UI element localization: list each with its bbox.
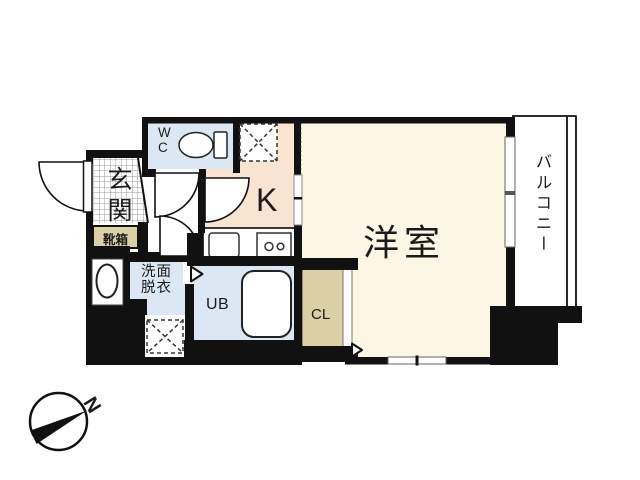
entrance-door-swing-icon [39,162,88,211]
closet-label: CL [311,306,330,323]
window-icon [388,357,416,364]
washbasin-icon [97,265,118,298]
kitchen-label: K [256,182,277,219]
stove-burner-icon [277,243,284,250]
unit-bath-label: UB [206,296,229,314]
fridge-space-icon [240,124,277,161]
stove-icon [257,233,291,259]
closet-door-strip [343,268,352,350]
wc-label: WC [158,125,174,155]
washroom-label: 洗面脱衣 [141,264,174,296]
wall-stub [187,233,203,266]
wc-door-swing-icon [155,173,199,217]
toilet-icon [179,132,227,158]
stove-burner-icon [265,243,273,251]
window-icon [418,357,446,364]
window-sash-tick [505,191,516,195]
compass-icon [30,393,87,450]
balcony-label: バルコニー [530,153,554,256]
western-room-label: 洋室 [363,214,445,266]
washer-space-icon [147,320,183,353]
bathtub-icon [242,271,291,337]
sliding-door-icon [294,175,302,225]
window-sash-tick [416,356,419,366]
floorplan-canvas: WC 玄関 靴箱 K 洗面脱衣 UB CL 洋室 バルコニー N [0,0,640,480]
entrance-label: 玄関 [100,166,136,228]
kitchen-sink-icon [209,233,239,257]
entrance-door-leaf [84,161,93,212]
sliding-door-tick [294,197,302,200]
shoe-box-label: 靴箱 [93,229,138,248]
